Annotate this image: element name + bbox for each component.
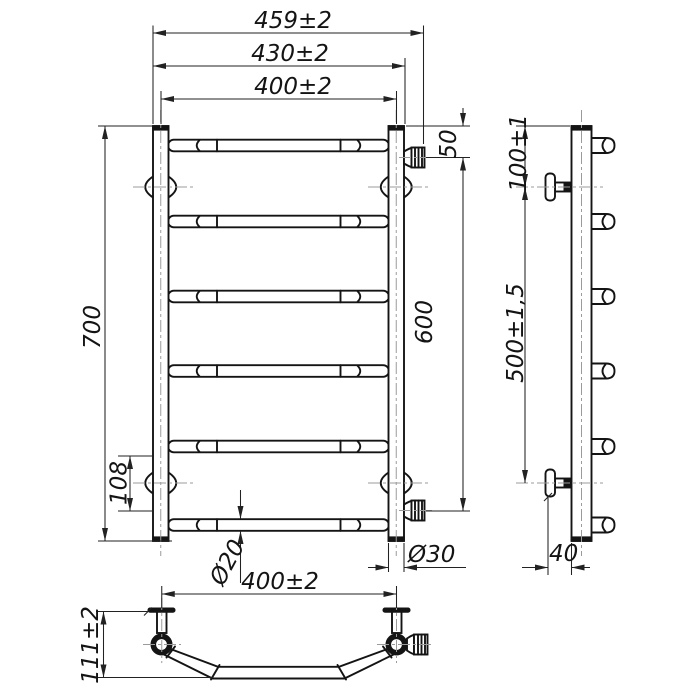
dim-label-connection-span: 600 [412, 300, 438, 344]
dim-label-post-dia: Ø30 [407, 542, 455, 568]
bottom-bend-marks [167, 647, 392, 680]
dim-label-width-overall: 459±2 [254, 8, 332, 34]
dim-label-bracket-span: 500±1,5 [503, 283, 529, 383]
dim-label-top-offset: 50 [436, 129, 462, 158]
centerlines [133, 110, 603, 663]
front-rungs [168, 140, 389, 531]
dim-label-bracket-top: 100±1 [506, 114, 532, 192]
dim-label-depth: 111±2 [78, 606, 104, 684]
dim-label-width-outer: 430±2 [251, 41, 329, 67]
dim-label-bottom-width: 400±2 [241, 569, 319, 595]
dim-label-width-centers: 400±2 [254, 74, 332, 100]
side-rung-stubs [592, 138, 615, 533]
dim-label-height: 700 [80, 305, 106, 349]
dim-label-rung-gap: 108 [107, 461, 133, 505]
technical-drawing: 459±2 430±2 400±2 700 108 Ø20 Ø30 50 600… [0, 0, 700, 700]
post-end-caps [152, 126, 405, 541]
rung-bend-marks [197, 140, 361, 531]
dim-label-wall-offset: 40 [549, 541, 578, 567]
bottom-rung-curve [164, 647, 394, 680]
bottom-view [148, 608, 428, 680]
front-view [145, 126, 424, 541]
side-view [546, 126, 615, 541]
